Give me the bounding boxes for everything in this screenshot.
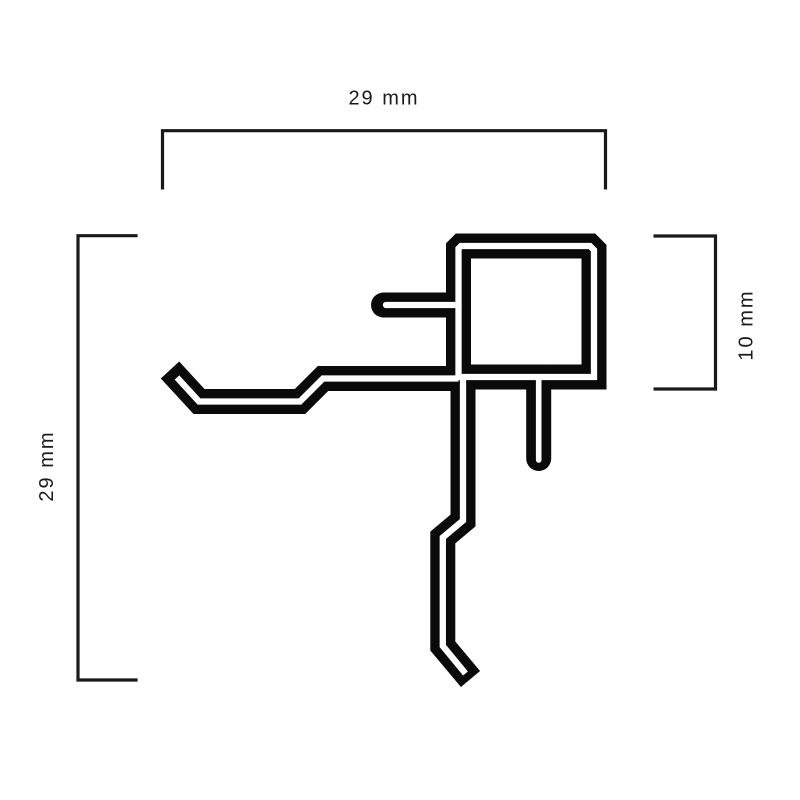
svg-text:29 mm: 29 mm [36,430,58,501]
svg-text:10 mm: 10 mm [736,289,758,360]
svg-text:29 mm: 29 mm [348,88,419,110]
